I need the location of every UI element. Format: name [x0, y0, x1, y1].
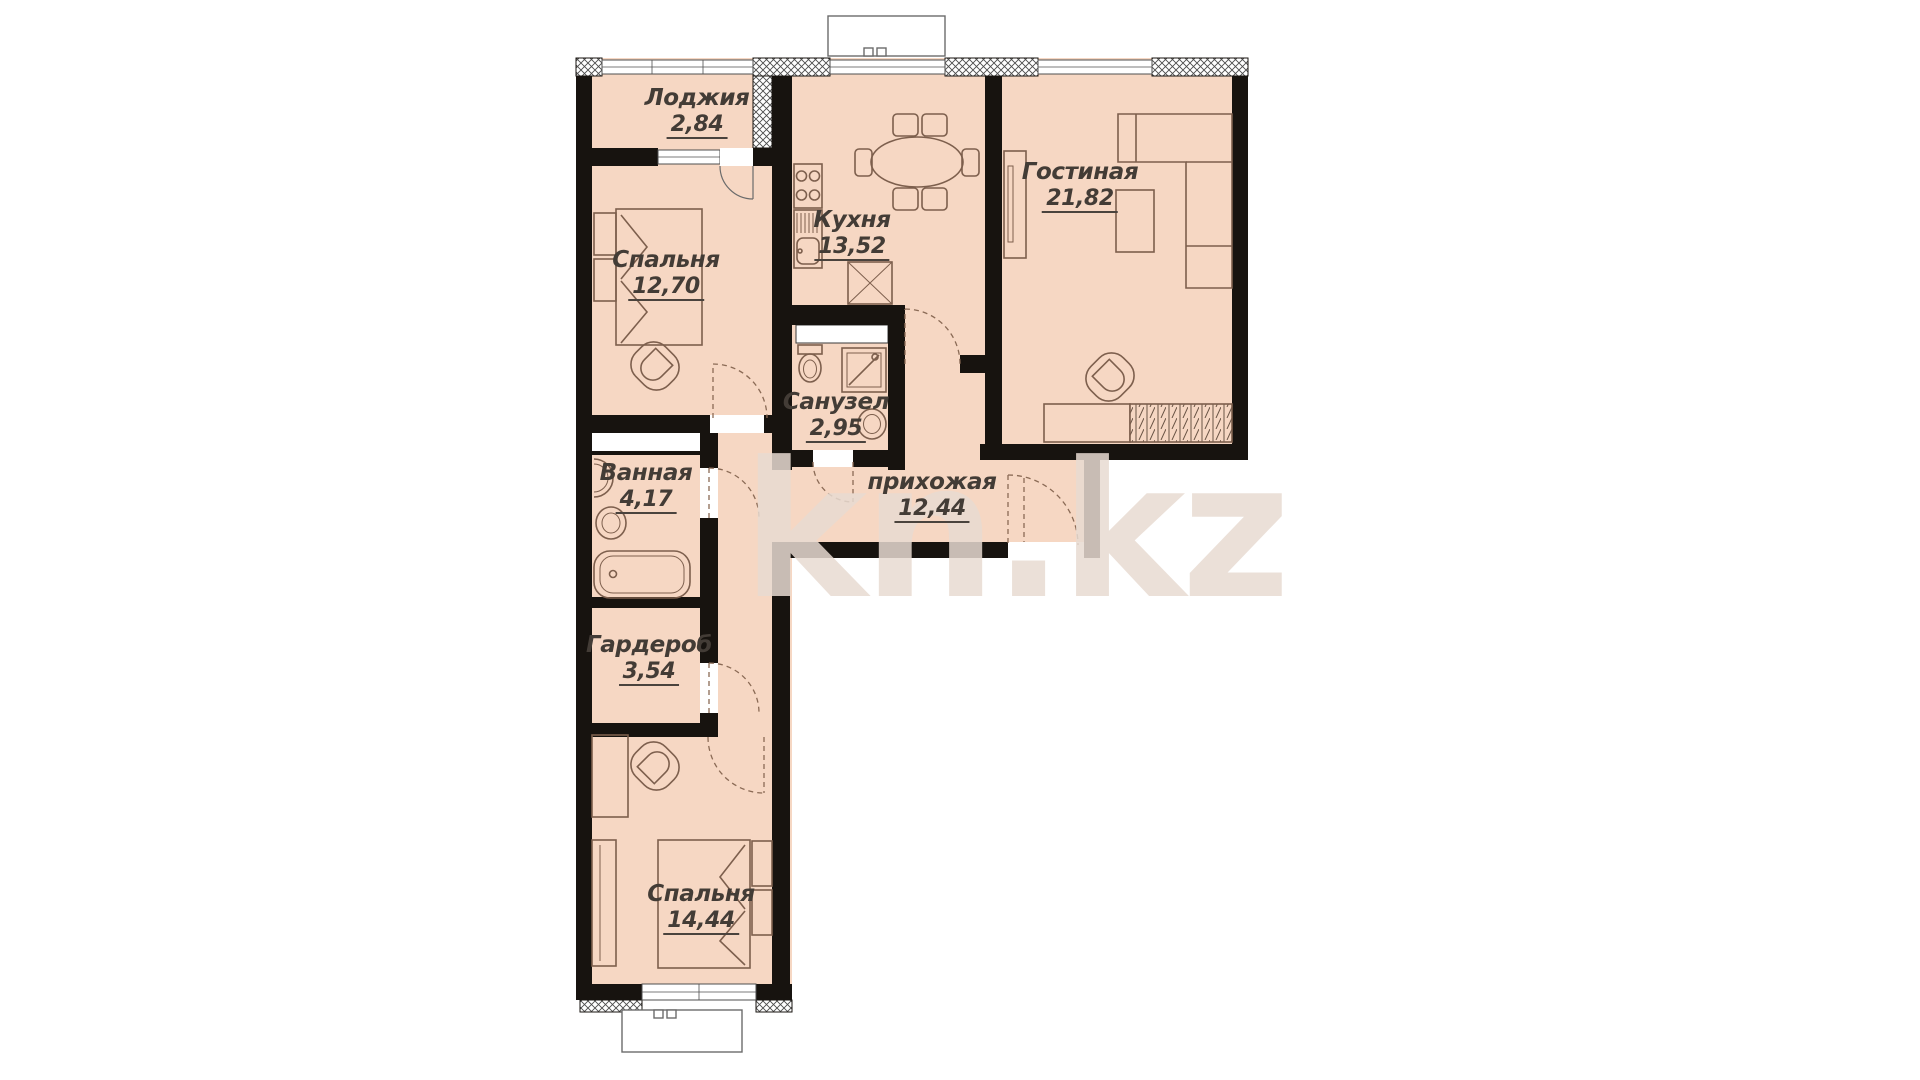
- wall-kitchen-bottom: [792, 305, 905, 325]
- room-name: Спальня: [647, 882, 755, 906]
- room-name: Ванная: [600, 461, 693, 485]
- room-label-bedroom-1: Спальня 12,70: [612, 248, 720, 301]
- kitchen-window: [830, 60, 945, 74]
- room-name: Гостиная: [1022, 160, 1139, 184]
- room-name: Гардероб: [586, 633, 712, 657]
- room-area: 4,17: [616, 488, 677, 514]
- wall-kitchen-living: [985, 76, 1002, 460]
- wall-right-exterior: [1232, 76, 1248, 460]
- loggia-bedroom-window: [658, 150, 720, 164]
- room-label-wardrobe: Гардероб 3,54: [586, 633, 712, 686]
- wall-bathroom-right: [700, 518, 718, 597]
- room-label-hallway: прихожая 12,44: [867, 470, 996, 523]
- living-window: [1038, 60, 1152, 74]
- wall-left-exterior: [576, 76, 592, 998]
- balcony-bottom: [622, 1010, 742, 1052]
- room-name: Кухня: [813, 208, 890, 232]
- balcony-top: [828, 16, 945, 56]
- room-name: Лоджия: [645, 86, 750, 110]
- loggia-glazing: [602, 60, 753, 74]
- room-area: 21,82: [1042, 187, 1118, 213]
- wall-bedroom1-bottom: [592, 415, 710, 433]
- room-label-living-room: Гостиная 21,82: [1022, 160, 1139, 213]
- room-label-bedroom-2: Спальня 14,44: [647, 882, 755, 935]
- room-label-bathroom: Ванная 4,17: [600, 461, 693, 514]
- room-name: Санузел: [783, 390, 889, 414]
- room-area: 3,54: [619, 660, 680, 686]
- room-label-wc: Санузел 2,95: [783, 390, 889, 443]
- room-area: 2,95: [806, 417, 867, 443]
- watermark-kn-kz: kn.kz: [742, 438, 1287, 626]
- room-area: 12,70: [628, 275, 704, 301]
- room-area: 13,52: [814, 235, 890, 261]
- room-name: прихожая: [867, 470, 996, 494]
- bedroom2-window: [642, 984, 756, 1000]
- room-label-kitchen: Кухня 13,52: [813, 208, 890, 261]
- room-label-loggia: Лоджия 2,84: [645, 86, 750, 139]
- room-name: Спальня: [612, 248, 720, 272]
- room-area: 14,44: [663, 909, 739, 935]
- room-area: 12,44: [894, 497, 970, 523]
- room-area: 2,84: [667, 113, 728, 139]
- floor-plan-canvas: kn.kz Лоджия 2,84 Спальня 12,70 Кухня 13…: [0, 0, 1920, 1080]
